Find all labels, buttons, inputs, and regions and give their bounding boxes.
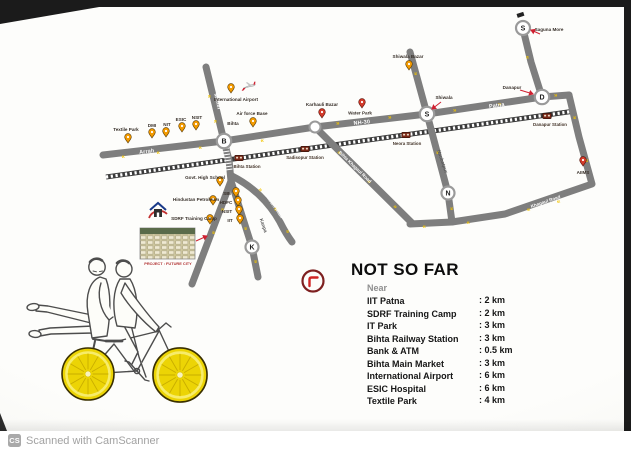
road-arrow: »: [198, 144, 203, 151]
inset-caption: PROJECT : FUTURE CITY: [144, 261, 192, 266]
front-rider: [114, 261, 159, 377]
station-icon-neora: [402, 132, 410, 137]
distance-label: IIT Patna: [367, 296, 405, 306]
camscanner-footer: CS Scanned with CamScanner: [0, 431, 631, 450]
builder-logo: [149, 203, 167, 218]
distance-row: Bank & ATM : 0.5 km: [367, 344, 567, 357]
distance-row: SDRF Training Camp : 2 km: [367, 307, 567, 320]
site-plan-trees: [140, 228, 195, 234]
station-label-danapur: Danapur Station: [533, 122, 567, 127]
distance-value: : 4 km: [479, 394, 505, 407]
distances-list: IIT Patna : 2 km SDRF Training Camp : 2 …: [367, 294, 567, 407]
label-dmi: DMI: [148, 123, 156, 128]
road-label-patna: Patna: [489, 102, 506, 110]
distance-label: Bihta Main Market: [367, 359, 444, 369]
label-shiwala: Shiwala: [435, 95, 453, 100]
railway-stations: Bihta Station Sadisopur Station Neora St…: [233, 113, 567, 169]
scanned-document-page: » » » » » » » » » » » » » » » » » » » » …: [0, 0, 631, 450]
road-arrow: »: [156, 149, 161, 156]
pin-nit: [163, 128, 170, 137]
tandem-riders-illustration: [27, 259, 207, 402]
pin-textile-park: [125, 134, 132, 143]
label-textile-park: Textile Park: [113, 127, 139, 132]
label-hdfc: HDFC: [220, 200, 233, 205]
junction-letter-d: D: [539, 95, 544, 102]
label-shiwala-bazar: Shiwala Bazar: [393, 54, 424, 59]
pin-dmi: [149, 129, 156, 138]
pin-international-airport: [228, 84, 235, 93]
distance-row: IIT Patna : 2 km: [367, 294, 567, 307]
label-karhauli-bazar: Karhauli Bazar: [306, 102, 338, 107]
distance-value: : 3 km: [479, 319, 505, 332]
distance-label: IT Park: [367, 321, 397, 331]
distance-row: Textile Park : 4 km: [367, 394, 567, 407]
pin-nsit: [193, 121, 200, 130]
junction-unlabeled: [310, 122, 321, 133]
distance-value: : 6 km: [479, 382, 505, 395]
pointer-shiwala: [432, 102, 441, 109]
road-label-arrah: Arrah: [139, 148, 155, 156]
distance-value: : 2 km: [479, 307, 505, 320]
station-label-bihta: Bihta Station: [233, 164, 260, 169]
camscanner-icon: CS: [8, 434, 21, 447]
road-label-nh30: NH-30: [353, 119, 370, 127]
label-international-airport: International Airport: [214, 97, 258, 102]
distance-row: Bihta Main Market : 3 km: [367, 357, 567, 370]
station-icon-sadisopur: [301, 146, 309, 151]
label-iit: IIT: [227, 218, 233, 223]
distance-label: International Airport: [367, 371, 453, 381]
pointer-danapur: [520, 90, 533, 94]
label-hindustan-petroleum: Hindustan Petroleum: [173, 197, 219, 202]
distance-value: : 6 km: [479, 369, 505, 382]
pin-esic: [179, 123, 186, 132]
pin-karhauli-bazar: [319, 109, 326, 118]
road-label-bihta-khagaul: Bihta Khagaul Road: [338, 150, 373, 184]
saguna-landmark-icon: [517, 12, 525, 18]
distance-row: IT Park : 3 km: [367, 319, 567, 332]
distance-row: ESIC Hospital : 6 km: [367, 382, 567, 395]
lemon-wheel-right: [153, 348, 207, 402]
turn-icon: [300, 268, 326, 294]
label-esic: ESIC: [176, 117, 187, 122]
label-saguna-more: Saguna More: [535, 27, 564, 32]
distance-label: Textile Park: [367, 396, 417, 406]
road-saguna: [523, 29, 542, 97]
project-inset: PROJECT : FUTURE CITY: [140, 203, 195, 266]
distance-value: : 3 km: [479, 357, 505, 370]
airplane-icon: [240, 80, 257, 91]
label-danapur: Danapur: [503, 85, 522, 90]
label-water-park: Water Park: [348, 111, 372, 116]
station-icon-danapur: [543, 113, 551, 118]
camscanner-watermark-text: Scanned with CamScanner: [26, 435, 159, 447]
distances-subtitle: Near: [367, 283, 387, 293]
label-nsit-kanpa: NSIT: [222, 209, 233, 214]
lemon-wheel-left: [62, 348, 114, 400]
scan-border-top: [0, 0, 631, 7]
distance-value: : 3 km: [479, 332, 505, 345]
label-air-force-base: Air force Base: [236, 111, 268, 116]
pin-air-force-base: [250, 118, 257, 127]
rear-rider: [27, 259, 113, 338]
station-label-neora: Neora Station: [393, 141, 422, 146]
junction-letter-k: K: [249, 245, 254, 252]
label-nit: NIT: [163, 122, 171, 127]
distance-value: : 2 km: [479, 294, 505, 307]
label-aiims: AIIMS: [577, 170, 590, 175]
pin-water-park: [359, 99, 366, 108]
label-nsit: NSIT: [192, 115, 203, 120]
road-label-kanpa: Kanpa: [258, 218, 269, 234]
distance-row: International Airport : 6 km: [367, 369, 567, 382]
label-govt-high-school: Govt. High School: [185, 175, 225, 180]
page-bottom-shadow: [0, 419, 631, 431]
distance-label: Bihta Railway Station: [367, 334, 459, 344]
distance-value: : 0.5 km: [479, 344, 513, 357]
road-arrow: »: [121, 153, 126, 160]
road-arrow: »: [260, 137, 265, 144]
distances-title: NOT SO FAR: [351, 260, 459, 280]
distance-label: Bank & ATM: [367, 346, 419, 356]
distance-row: Bihta Railway Station : 3 km: [367, 332, 567, 345]
label-bihta: Bihta: [227, 121, 239, 126]
station-label-sadisopur: Sadisopur Station: [286, 155, 324, 160]
junction-letter-s: S: [425, 112, 430, 119]
distance-label: SDRF Training Camp: [367, 309, 457, 319]
label-sdrf-camp: SDRF Training Camp: [171, 216, 217, 221]
junction-letter-n: N: [445, 191, 450, 198]
scan-border-right: [624, 0, 631, 431]
label-sbi: SBI: [223, 191, 231, 196]
junction-letter-b: B: [221, 139, 226, 146]
station-icon-bihta: [235, 155, 243, 160]
junction-letter-s2: S: [521, 26, 526, 33]
distance-label: ESIC Hospital: [367, 384, 426, 394]
